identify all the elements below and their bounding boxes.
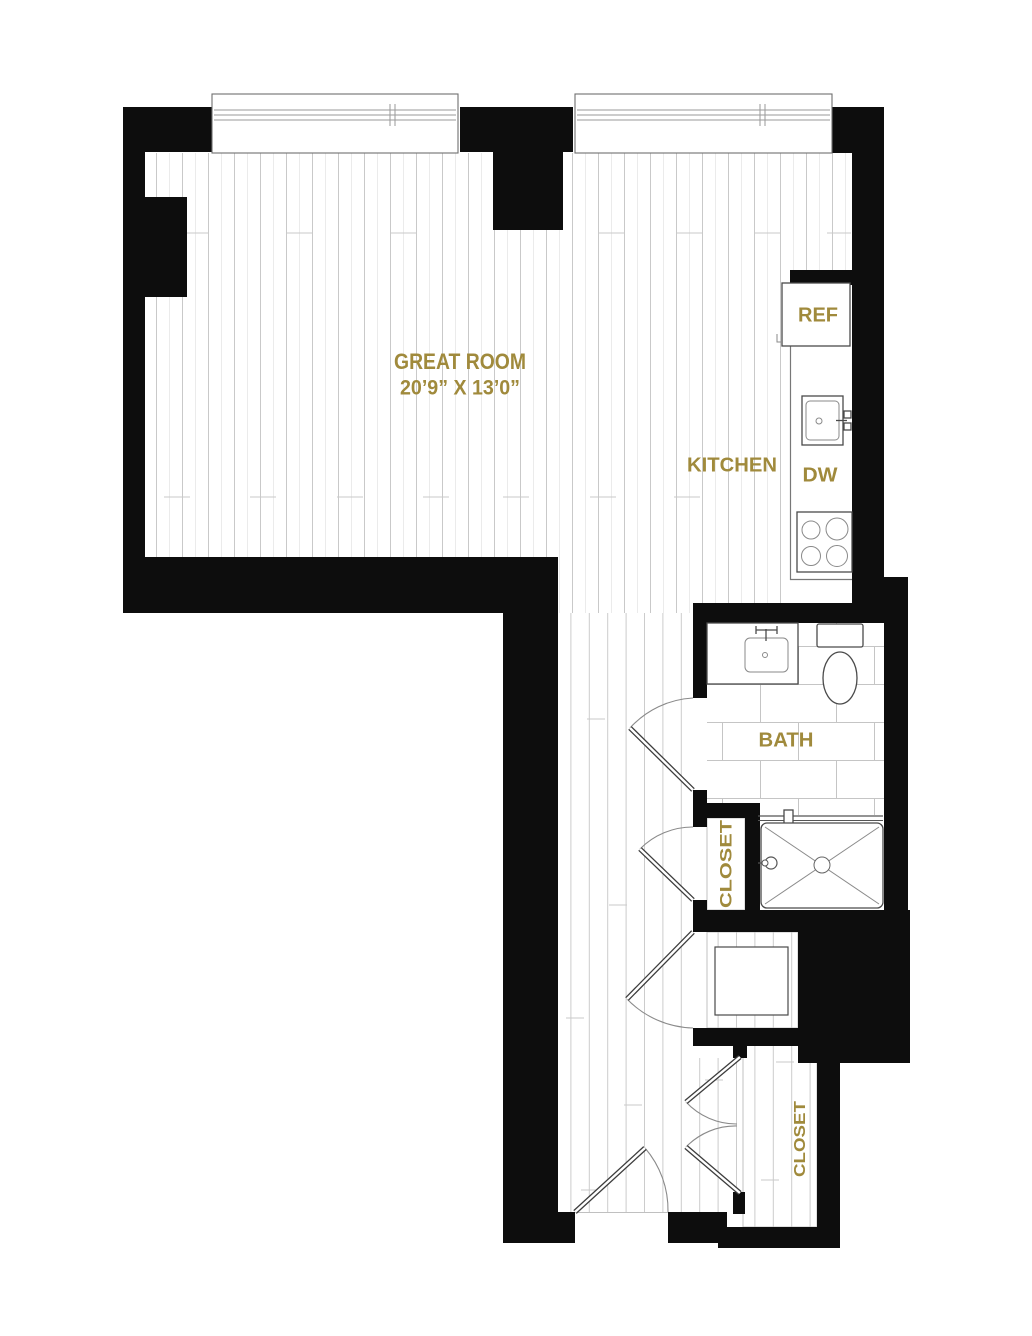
wall-segment [718,1227,840,1248]
bath-vanity [707,623,798,684]
shower [758,810,883,908]
wall-segment [493,152,563,230]
great-room-dimensions: 20’9” X 13’0” [400,377,520,400]
window-left [212,94,458,153]
floor-plan-canvas: GREAT ROOM 20’9” X 13’0” KITCHEN REF DW … [0,0,1032,1336]
kitchen-label: KITCHEN [687,454,777,476]
bath-label: BATH [759,729,814,751]
refrigerator-label: REF [798,304,838,326]
wall-segment [668,1212,727,1243]
stove [797,512,852,572]
wall-segment [123,197,187,297]
window-right [575,94,832,153]
floor-plan-svg: GREAT ROOM 20’9” X 13’0” KITCHEN REF DW … [0,0,1032,1336]
wall-segment [558,1212,575,1243]
wall-segment [745,818,760,912]
wall-segment [707,803,760,818]
wall-segment [460,107,573,152]
wall-segment [852,108,884,577]
entry-closet-label: CLOSET [792,1101,809,1177]
wall-segment [693,603,908,623]
wall-segment [733,1044,747,1058]
washer-dryer-unit [715,947,788,1015]
wall-segment [123,107,145,613]
wall-segment [123,557,558,613]
great-room-label: GREAT ROOM [394,349,526,374]
wall-segment [733,1192,745,1214]
wall-segment [503,613,558,1243]
wall-segment [884,623,908,933]
wall-segment [693,790,707,827]
wall-segment [817,1030,840,1248]
hall-closet-label: CLOSET [716,819,735,908]
wall-segment [693,623,707,698]
shower-drain-icon [814,857,830,873]
dishwasher-label: DW [803,464,838,486]
